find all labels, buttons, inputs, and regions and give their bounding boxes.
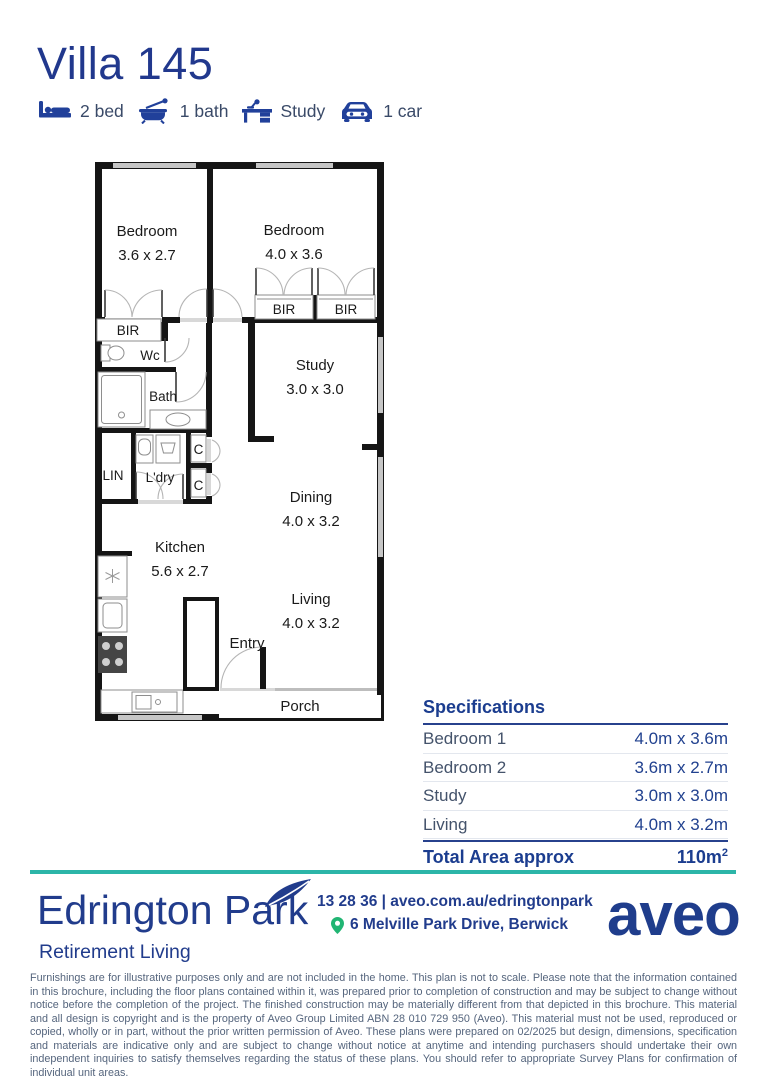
spec-label: Bedroom 1 [423, 729, 506, 749]
total-area-value: 110m2 [677, 847, 728, 868]
label-wc: Wc [140, 348, 160, 363]
room-label-dining-name: Dining [290, 489, 333, 506]
location-pin-icon [331, 917, 344, 934]
brochure-page: Villa 145 2 bed [0, 0, 764, 1080]
label-bath: Bath [149, 389, 177, 404]
specifications-table: Specifications Bedroom 1 4.0m x 3.6m Bed… [423, 697, 728, 868]
address-line: 6 Melville Park Drive, Berwick [331, 916, 593, 934]
contact-block: 13 28 36 | aveo.com.au/edringtonpark 6 M… [317, 893, 593, 934]
footer-divider [30, 870, 736, 874]
room-label-study-dims: 3.0 x 3.0 [286, 381, 344, 398]
table-row: Living 4.0m x 3.2m [423, 811, 728, 840]
spec-value: 3.6m x 2.7m [634, 758, 728, 778]
cooktop [98, 636, 127, 673]
aveo-logo: aveo [607, 880, 740, 949]
feature-study-label: Study [280, 101, 325, 122]
label-bir1: BIR [117, 323, 140, 338]
room-label-bedroom1-dims: 3.6 x 2.7 [118, 247, 176, 264]
feature-bed-label: 2 bed [80, 101, 124, 122]
entry-wall [185, 599, 217, 689]
leaf-icon [263, 877, 315, 916]
spec-label: Study [423, 786, 466, 806]
spec-label: Living [423, 815, 467, 835]
phone-and-web: 13 28 36 | aveo.com.au/edringtonpark [317, 893, 593, 911]
spec-value: 4.0m x 3.2m [634, 815, 728, 835]
room-label-kitchen-dims: 5.6 x 2.7 [151, 563, 209, 580]
floorplan: Bedroom 3.6 x 2.7 Bedroom 4.0 x 3.6 Stud… [90, 158, 392, 724]
feature-car-label: 1 car [383, 101, 422, 122]
total-area-label: Total Area approx [423, 847, 574, 868]
spec-label: Bedroom 2 [423, 758, 506, 778]
desk-icon [242, 99, 272, 123]
feature-car: 1 car [339, 100, 422, 122]
feature-bath-label: 1 bath [180, 101, 229, 122]
community-tagline: Retirement Living [39, 941, 191, 964]
feature-bath: 1 bath [138, 98, 229, 124]
table-row: Study 3.0m x 3.0m [423, 782, 728, 811]
label-c2: C [194, 478, 204, 493]
car-icon [339, 100, 375, 122]
feature-bed: 2 bed [38, 100, 124, 122]
feature-study: Study [242, 99, 325, 123]
room-label-study-name: Study [296, 357, 335, 374]
spec-value: 4.0m x 3.6m [634, 729, 728, 749]
label-porch: Porch [280, 698, 319, 715]
room-label-living-dims: 4.0 x 3.2 [282, 615, 340, 632]
bed-icon [38, 100, 72, 122]
entry-door-leaf [260, 647, 266, 689]
room-label-bedroom2-dims: 4.0 x 3.6 [265, 246, 323, 263]
table-row: Bedroom 2 3.6m x 2.7m [423, 754, 728, 783]
label-ldry: L'dry [146, 470, 175, 485]
room-label-bedroom1-name: Bedroom [117, 223, 178, 240]
table-row: Bedroom 1 4.0m x 3.6m [423, 725, 728, 754]
room-label-bedroom2-name: Bedroom [264, 222, 325, 239]
room-label-dining-dims: 4.0 x 3.2 [282, 513, 340, 530]
page-title: Villa 145 [37, 38, 213, 90]
label-bir2: BIR [273, 302, 296, 317]
feature-summary: 2 bed 1 bath [38, 98, 436, 124]
room-label-living-name: Living [291, 591, 330, 608]
spec-value: 3.0m x 3.0m [634, 786, 728, 806]
label-c1: C [194, 442, 204, 457]
label-bir3: BIR [335, 302, 358, 317]
address-text: 6 Melville Park Drive, Berwick [350, 916, 568, 934]
specifications-title: Specifications [423, 697, 728, 725]
label-lin: LIN [102, 468, 123, 483]
disclaimer-text: Furnishings are for illustrative purpose… [30, 972, 737, 1080]
bath-icon [138, 98, 172, 124]
total-area-row: Total Area approx 110m2 [423, 840, 728, 868]
label-entry: Entry [229, 635, 265, 652]
room-label-kitchen-name: Kitchen [155, 539, 205, 556]
